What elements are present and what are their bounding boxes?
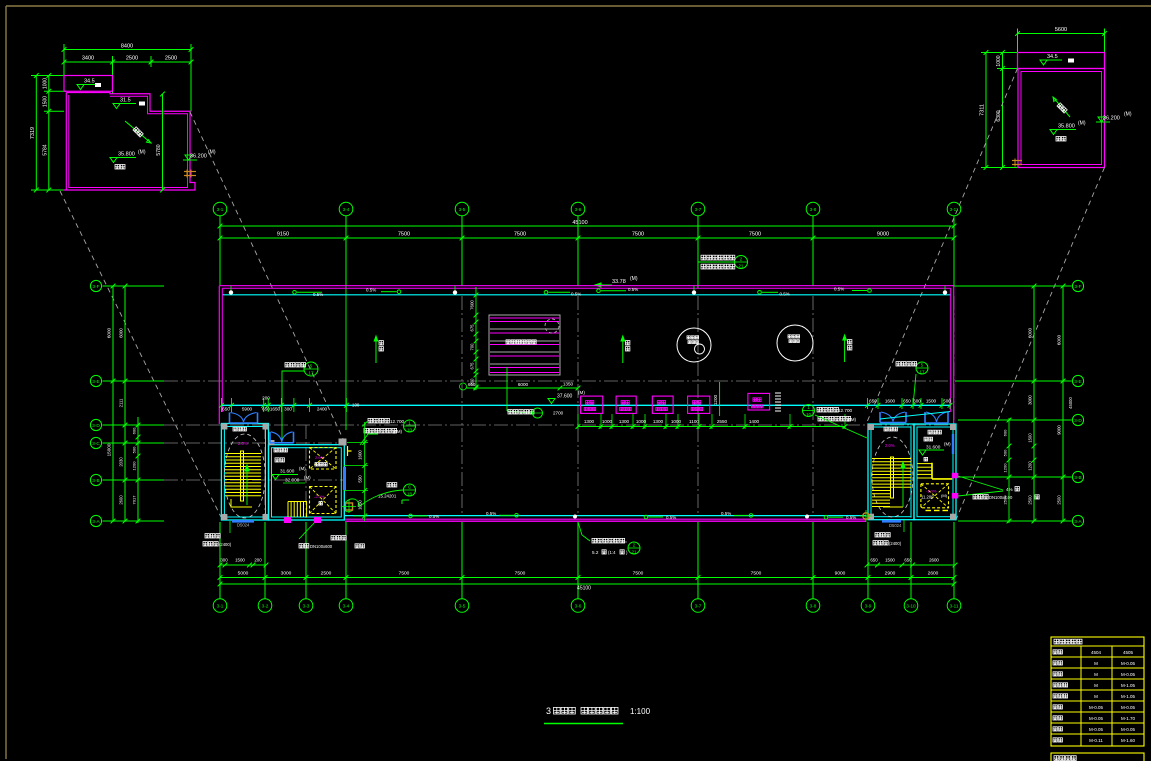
svg-text:3-A: 3-A	[92, 519, 100, 524]
svg-text:7500: 7500	[633, 571, 644, 577]
svg-text:2500: 2500	[1028, 495, 1033, 505]
svg-text:5900: 5900	[242, 407, 253, 412]
svg-text:2500: 2500	[1003, 495, 1008, 505]
svg-text:(1:4: (1:4	[608, 550, 616, 555]
svg-text:3-5: 3-5	[459, 604, 466, 609]
svg-text:650: 650	[222, 407, 230, 412]
svg-text:3-A: 3-A	[1074, 519, 1082, 524]
svg-text:0.5%: 0.5%	[834, 286, 844, 291]
svg-text:0.5%: 0.5%	[666, 515, 676, 520]
svg-text:2400: 2400	[317, 407, 328, 412]
svg-text:1000: 1000	[996, 55, 1002, 66]
svg-text:21: 21	[738, 264, 744, 269]
svg-text:34.5: 34.5	[1047, 54, 1058, 60]
svg-text:37.600: 37.600	[557, 394, 573, 400]
svg-text:3400: 3400	[82, 56, 94, 62]
svg-text:650: 650	[468, 382, 476, 387]
svg-text:300: 300	[220, 558, 228, 563]
svg-text:45100: 45100	[572, 220, 587, 226]
svg-text:(M): (M)	[944, 442, 951, 447]
svg-text:3000: 3000	[281, 571, 292, 577]
svg-text:3-2: 3-2	[262, 604, 269, 609]
svg-text:550: 550	[358, 475, 363, 483]
svg-text:3-6: 3-6	[575, 207, 582, 212]
svg-text:1300: 1300	[584, 419, 595, 424]
svg-text:3-D: 3-D	[1074, 418, 1082, 423]
svg-text:1600: 1600	[885, 399, 896, 404]
svg-text:h=: h=	[622, 539, 627, 544]
svg-text:M-0.11: M-0.11	[1089, 738, 1103, 743]
svg-text:3-11: 3-11	[950, 207, 959, 212]
svg-text:3-8: 3-8	[810, 207, 817, 212]
svg-text:1200: 1200	[1003, 463, 1008, 473]
svg-text:1350: 1350	[563, 382, 574, 387]
svg-text:10: 10	[407, 428, 413, 433]
svg-text:600: 600	[913, 399, 921, 404]
svg-text:7319: 7319	[30, 127, 36, 139]
svg-text:1000: 1000	[671, 419, 682, 424]
svg-text:3-F: 3-F	[1075, 284, 1082, 289]
svg-text:31.5: 31.5	[120, 98, 131, 104]
svg-text:2500: 2500	[126, 56, 138, 62]
svg-text:5600: 5600	[1055, 27, 1067, 33]
svg-text:650: 650	[870, 558, 878, 563]
svg-text:675: 675	[470, 362, 475, 370]
svg-text:2.0%: 2.0%	[238, 441, 248, 446]
svg-text:3-9: 3-9	[865, 604, 872, 609]
svg-text:2700: 2700	[553, 411, 564, 416]
svg-text:35.800: 35.800	[118, 152, 135, 158]
svg-text:(M): (M)	[1124, 112, 1132, 118]
svg-text:12.700: 12.700	[390, 419, 404, 424]
svg-text:M-1.05: M-1.05	[1121, 683, 1136, 688]
svg-text:2500: 2500	[1057, 495, 1062, 505]
svg-text:15000: 15000	[107, 443, 112, 456]
svg-text:7500: 7500	[399, 571, 410, 577]
svg-text:7500: 7500	[514, 232, 526, 238]
svg-text:6000: 6000	[119, 328, 124, 338]
svg-text:3: 3	[546, 706, 551, 716]
svg-text:200: 200	[254, 558, 262, 563]
svg-text:9000: 9000	[877, 232, 889, 238]
svg-text:9000: 9000	[1057, 425, 1062, 435]
svg-text:M-0.05: M-0.05	[1089, 716, 1104, 721]
svg-text:D5024: D5024	[889, 523, 902, 528]
svg-text:1200: 1200	[132, 461, 137, 471]
svg-text:0.5%: 0.5%	[628, 287, 638, 292]
svg-text:1000: 1000	[636, 419, 647, 424]
svg-text:3-7: 3-7	[695, 604, 702, 609]
svg-text:DN100x600: DN100x600	[310, 544, 333, 549]
svg-text:36.200: 36.200	[190, 154, 207, 160]
svg-text:(M): (M)	[1078, 121, 1086, 127]
svg-text:2550: 2550	[717, 419, 728, 424]
svg-text:21: 21	[631, 550, 637, 555]
svg-text:3-10: 3-10	[906, 604, 916, 609]
svg-text:5784: 5784	[43, 144, 49, 155]
svg-text:3-5: 3-5	[459, 207, 466, 212]
svg-text:1050: 1050	[358, 500, 363, 510]
svg-text:M: M	[1094, 694, 1098, 699]
svg-text:(6M): (6M)	[847, 417, 857, 422]
svg-text:0.5%: 0.5%	[429, 514, 439, 519]
svg-text:4504: 4504	[1091, 650, 1102, 655]
svg-text:1200: 1200	[1028, 461, 1033, 471]
svg-text:650: 650	[903, 399, 911, 404]
svg-text:6000: 6000	[107, 327, 112, 338]
svg-text:0.5%: 0.5%	[846, 515, 856, 520]
svg-text:3-7: 3-7	[695, 207, 702, 212]
svg-text:M-0.05: M-0.05	[1121, 661, 1136, 666]
svg-text:650: 650	[869, 399, 877, 404]
svg-text:3-D: 3-D	[92, 423, 100, 428]
svg-text:500: 500	[132, 446, 137, 453]
svg-text:34.5: 34.5	[84, 79, 95, 85]
svg-text:11.200: 11.200	[921, 495, 934, 500]
svg-text:3-B: 3-B	[92, 478, 99, 483]
svg-text:M-0.05: M-0.05	[1089, 727, 1104, 732]
svg-text:500: 500	[1003, 449, 1008, 456]
svg-text:8400: 8400	[121, 44, 133, 50]
svg-text:6000: 6000	[518, 382, 529, 387]
svg-text:3-C: 3-C	[92, 441, 100, 446]
svg-text:1600: 1600	[358, 450, 363, 460]
svg-text:(2400): (2400)	[889, 541, 902, 546]
svg-text:7017: 7017	[132, 495, 137, 505]
svg-text:35.800: 35.800	[1058, 124, 1075, 130]
svg-text:(M): (M)	[299, 466, 306, 471]
svg-text:2500: 2500	[321, 571, 332, 577]
svg-text:1500: 1500	[926, 399, 937, 404]
svg-text:D5024: D5024	[237, 523, 250, 528]
svg-text:3-3: 3-3	[303, 604, 310, 609]
svg-text:(M): (M)	[138, 150, 146, 156]
svg-text:M-1.05: M-1.05	[1121, 694, 1136, 699]
svg-text:100: 100	[352, 403, 360, 408]
svg-text:2111: 2111	[119, 398, 124, 407]
svg-text:1100: 1100	[689, 419, 699, 424]
svg-text:M-0.05: M-0.05	[1121, 672, 1136, 677]
svg-text:6000: 6000	[1057, 334, 1062, 345]
svg-text:36.200: 36.200	[1103, 116, 1120, 122]
svg-text:31.600: 31.600	[926, 445, 941, 450]
svg-text:6000: 6000	[1028, 327, 1033, 338]
svg-text:45100: 45100	[577, 586, 591, 592]
svg-text:M-1.60: M-1.60	[1121, 738, 1136, 743]
svg-text:(M): (M)	[630, 276, 638, 282]
svg-text:(6M): (6M)	[393, 429, 403, 434]
svg-text:45000: 45000	[1068, 397, 1073, 409]
svg-text:3-8: 3-8	[810, 604, 817, 609]
svg-text:1300: 1300	[619, 419, 630, 424]
svg-text:1650: 1650	[270, 407, 281, 412]
svg-text:32.000: 32.000	[285, 478, 300, 483]
svg-text:2.0%: 2.0%	[885, 443, 895, 448]
svg-text:M: M	[1094, 672, 1098, 677]
svg-text:3-1: 3-1	[217, 207, 224, 212]
svg-text:600: 600	[132, 427, 137, 434]
svg-text:300: 300	[284, 407, 292, 412]
svg-text:0.5%: 0.5%	[366, 287, 376, 292]
svg-text:2.0%: 2.0%	[315, 455, 325, 460]
svg-text:7311: 7311	[980, 104, 986, 116]
svg-text:7500: 7500	[632, 232, 644, 238]
svg-text:5.2: 5.2	[592, 550, 599, 555]
svg-text:(M): (M)	[208, 150, 216, 156]
svg-text:600: 600	[1003, 429, 1008, 436]
svg-text:1500: 1500	[885, 558, 895, 563]
svg-text:3-4: 3-4	[343, 207, 350, 212]
svg-text:(M): (M)	[578, 390, 585, 395]
svg-text:5000: 5000	[238, 571, 249, 577]
svg-text:7500: 7500	[515, 571, 526, 577]
svg-text:3-E: 3-E	[1074, 379, 1081, 384]
svg-text:5780: 5780	[156, 144, 162, 155]
svg-text:0.5%: 0.5%	[571, 292, 581, 297]
svg-text:(M): (M)	[304, 475, 311, 480]
svg-text:2500: 2500	[165, 56, 177, 62]
svg-text:1300: 1300	[653, 419, 664, 424]
svg-text:7500: 7500	[751, 571, 762, 577]
svg-text:9150: 9150	[277, 232, 289, 238]
svg-text:3-1: 3-1	[217, 604, 224, 609]
svg-text:M-0.05: M-0.05	[1121, 705, 1136, 710]
svg-text:3000: 3000	[1028, 395, 1033, 405]
svg-text:18: 18	[407, 492, 413, 497]
svg-text:0.5%: 0.5%	[721, 511, 731, 516]
svg-text:500: 500	[943, 399, 951, 404]
svg-text:1400: 1400	[749, 419, 760, 424]
svg-text:2600: 2600	[119, 495, 124, 505]
svg-text:0.5%: 0.5%	[313, 292, 323, 297]
svg-text:1000: 1000	[43, 78, 49, 89]
svg-text:1:100: 1:100	[630, 707, 651, 716]
svg-text:4505: 4505	[1123, 650, 1134, 655]
svg-text:3-F: 3-F	[93, 284, 100, 289]
svg-text:1200: 1200	[713, 394, 718, 405]
svg-text:-2.0%: -2.0%	[314, 494, 325, 499]
svg-text:M-1.70: M-1.70	[1121, 716, 1136, 721]
svg-text:0.5%: 0.5%	[486, 511, 496, 516]
svg-text:3-E: 3-E	[92, 379, 99, 384]
svg-text:(M): (M)	[941, 493, 948, 498]
svg-text:7500: 7500	[398, 232, 410, 238]
svg-text:0.5%: 0.5%	[780, 292, 790, 297]
svg-text:M: M	[1094, 661, 1098, 666]
svg-text:700: 700	[470, 343, 475, 351]
svg-text:(2400): (2400)	[219, 542, 232, 547]
svg-text:17: 17	[919, 370, 925, 375]
svg-text:M-0.05: M-0.05	[1121, 727, 1136, 732]
svg-text:1500: 1500	[43, 96, 49, 107]
svg-text:2600: 2600	[928, 571, 939, 577]
svg-text:31.600: 31.600	[280, 469, 295, 474]
svg-text:2030: 2030	[119, 457, 124, 467]
svg-text:1500: 1500	[235, 558, 245, 563]
svg-text:2900: 2900	[885, 571, 896, 577]
svg-text:9000: 9000	[835, 571, 846, 577]
svg-text:3-4: 3-4	[343, 604, 350, 609]
svg-text:3-6: 3-6	[575, 604, 582, 609]
svg-text:M-0.05: M-0.05	[1089, 705, 1104, 710]
svg-text:675: 675	[470, 324, 475, 332]
svg-text:200: 200	[262, 396, 270, 401]
svg-text:-1.0%: -1.0%	[926, 489, 937, 494]
svg-text:33.78: 33.78	[612, 279, 626, 285]
svg-text:17: 17	[308, 371, 314, 376]
svg-text:1500: 1500	[1028, 433, 1033, 443]
svg-text:7600: 7600	[470, 300, 475, 310]
svg-text:1000: 1000	[602, 419, 613, 424]
svg-text:2600: 2600	[929, 558, 939, 563]
svg-text:10: 10	[806, 412, 812, 417]
svg-text:M: M	[1094, 683, 1098, 688]
svg-text:12.700: 12.700	[838, 408, 852, 413]
svg-text:3-B: 3-B	[1074, 475, 1081, 480]
svg-text:3-11: 3-11	[950, 604, 959, 609]
svg-text:650: 650	[904, 558, 912, 563]
svg-text:7500: 7500	[749, 232, 761, 238]
